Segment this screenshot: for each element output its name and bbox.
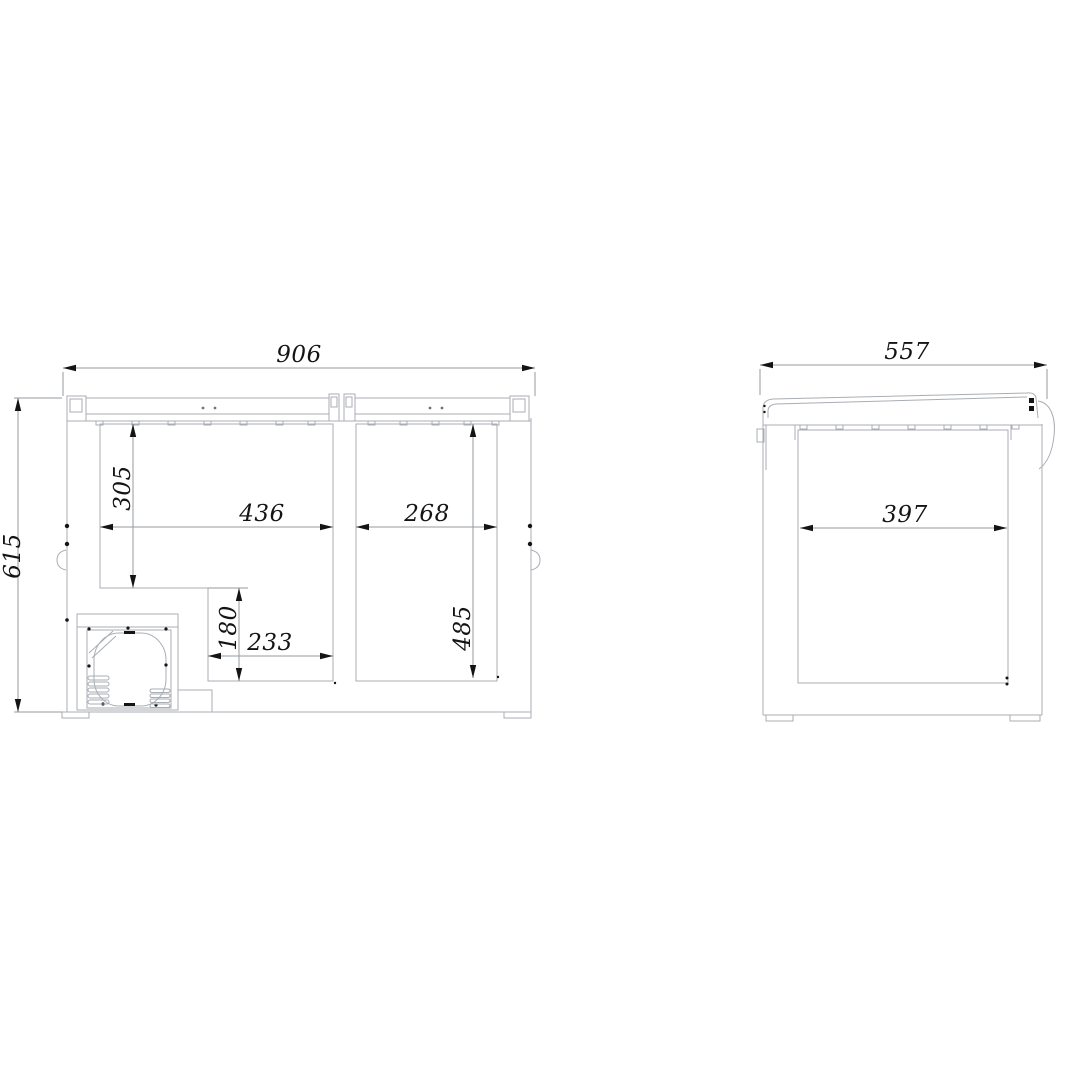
side-interior-hooks [795, 425, 1011, 440]
compressor-unit [77, 614, 212, 712]
compressor-body [94, 633, 166, 706]
left-lid-screw-2 [214, 407, 217, 410]
right-lid-screw-1 [429, 407, 432, 410]
right-width-label: 268 [403, 501, 449, 527]
side-compartment [798, 430, 1008, 683]
side-rim-bumps [800, 425, 1019, 429]
side-right-foot [1010, 715, 1040, 721]
hinge-strap [1038, 401, 1054, 469]
lid-left-corner-inner [70, 399, 82, 412]
side-dimension-labels: 557 397 [882, 339, 929, 528]
dim-906-line [63, 368, 535, 396]
condenser-fins-right [150, 689, 170, 708]
compressor-tick-top [124, 631, 135, 634]
side-cabinet-outline [757, 418, 1042, 721]
right-lid [355, 398, 510, 414]
front-lids [67, 394, 529, 421]
side-floor-mark-2 [1006, 683, 1009, 686]
interior-depth-label: 397 [882, 502, 927, 528]
front-view: 906 615 305 436 268 233 180 485 [0, 342, 540, 718]
step-depth-label: 180 [216, 605, 242, 650]
compressor-pipe [89, 631, 116, 658]
floor-step-under [178, 690, 212, 712]
left-latch-pin-2 [65, 542, 69, 546]
right-latch-pin-1 [528, 524, 532, 528]
lid-front-pin-1 [763, 405, 765, 407]
side-lid-inner [768, 397, 1027, 418]
side-interior [795, 425, 1011, 686]
front-right-foot [504, 712, 531, 718]
front-interior [100, 424, 499, 684]
side-lid-outer [763, 393, 1038, 418]
left-width-label: 436 [238, 501, 284, 527]
floor-mark-1 [334, 682, 336, 684]
lid-right-corner-inner [513, 399, 525, 412]
floor-mark-2 [497, 676, 499, 678]
hinge-pin-1 [1029, 398, 1034, 403]
side-floor-mark-1 [1006, 677, 1009, 680]
overall-depth-label: 557 [884, 339, 929, 365]
right-latch-handle [531, 550, 540, 570]
condenser-fins-left [88, 676, 109, 704]
right-latch-pin-2 [528, 542, 532, 546]
left-lid [86, 398, 329, 414]
lid-center-inner-right [346, 397, 352, 407]
hinge-pin-2 [1029, 406, 1034, 411]
drawing-canvas: 906 615 305 436 268 233 180 485 [0, 0, 1080, 1080]
right-lid-screw-2 [441, 407, 444, 410]
front-cabinet-outline [62, 418, 531, 718]
left-latch-handle [57, 550, 66, 570]
step-width-label: 233 [246, 630, 292, 656]
frame-mount-dot [65, 618, 69, 622]
compressor-tick-bottom [124, 703, 135, 706]
front-dimension-lines [14, 365, 535, 712]
left-latch-pin-1 [65, 524, 69, 528]
lid-center-inner-left [331, 397, 337, 407]
side-left-foot [766, 715, 793, 721]
overall-width-label: 906 [276, 342, 321, 368]
left-depth-label: 305 [110, 465, 136, 510]
right-depth-label: 485 [450, 605, 476, 651]
front-dimension-labels: 906 615 305 436 268 233 180 485 [0, 342, 476, 656]
technical-drawing: 906 615 305 436 268 233 180 485 [0, 0, 1080, 1080]
left-lid-screw-1 [202, 407, 205, 410]
side-view: 557 397 [757, 339, 1054, 721]
front-left-foot [62, 712, 89, 718]
lid-front-pin-2 [763, 411, 765, 413]
overall-height-label: 615 [0, 533, 26, 578]
